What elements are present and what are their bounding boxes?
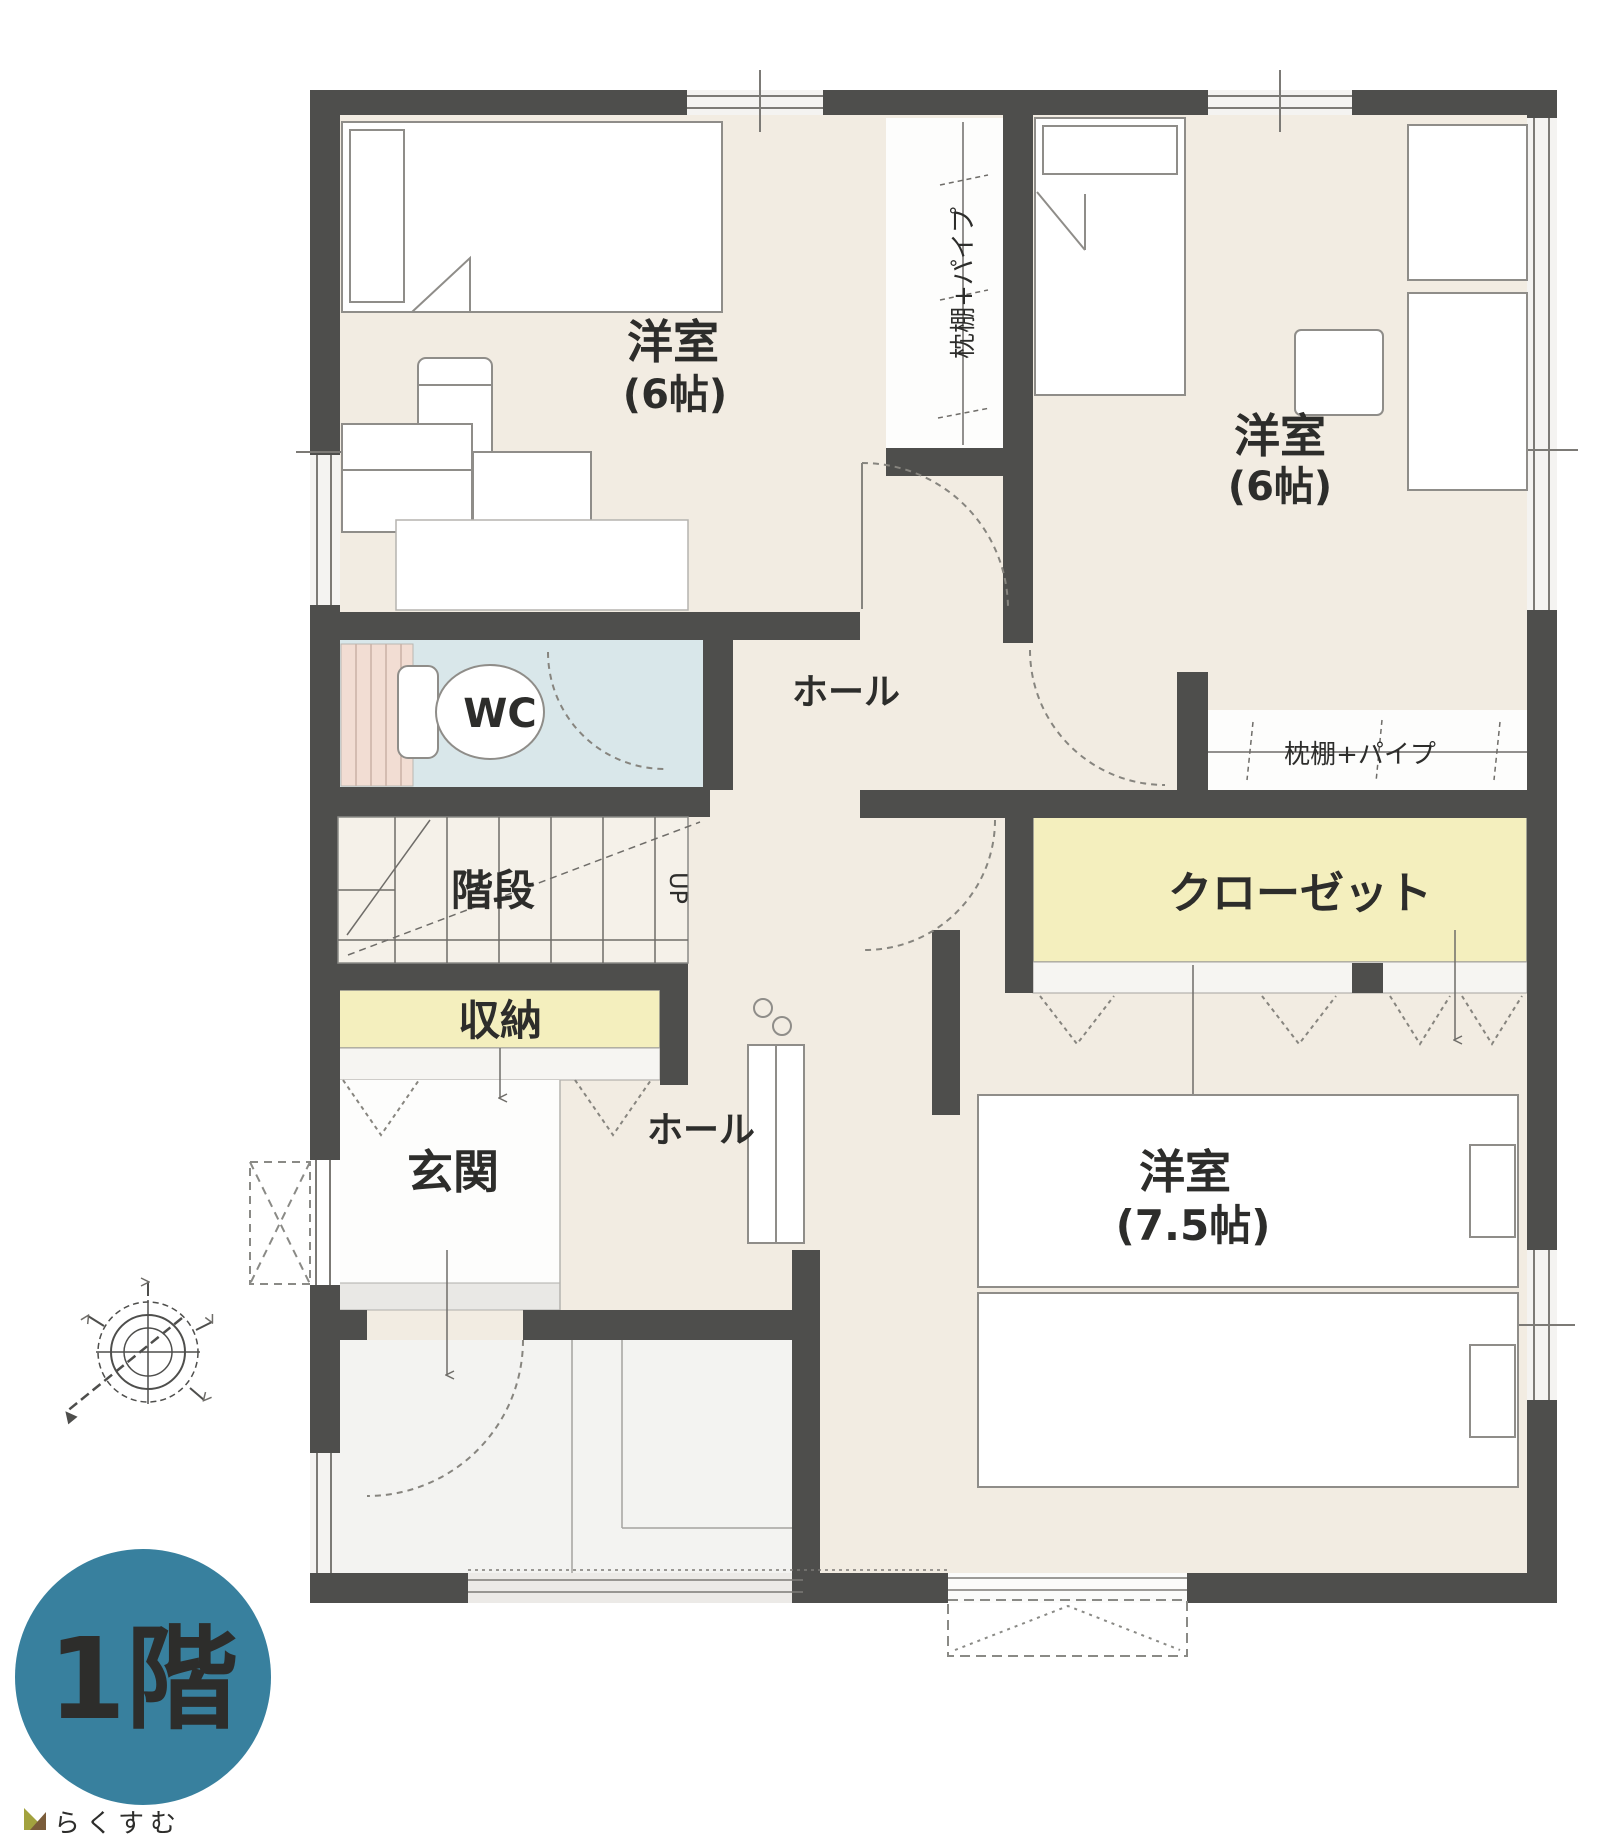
wall-top-2 — [823, 90, 1208, 115]
label-stairs: 階段 — [451, 866, 535, 915]
wall-storage-right — [660, 990, 688, 1085]
compass-icon — [66, 1282, 212, 1412]
wall-left-2 — [310, 605, 340, 1160]
floor-plan-canvas: 洋室 (6帖) 洋室 (6帖) 洋室 (7.5帖) WC 階段 UP 収納 玄関… — [0, 0, 1600, 1835]
wall-shelf-stub — [1177, 672, 1208, 790]
compass-north-arrow — [66, 1318, 182, 1412]
cabinet-nw-c — [396, 520, 688, 610]
label-bedroom-nw: 洋室 — [627, 315, 719, 369]
wall-right-2 — [1527, 1400, 1557, 1603]
floor-closet-strip-vertical — [886, 118, 1003, 448]
bed-s2 — [978, 1293, 1518, 1487]
label-bedroom-s-size: (7.5帖) — [1116, 1201, 1271, 1250]
label-hall-lower: ホール — [647, 1110, 755, 1151]
bed-s2-pillow — [1470, 1345, 1515, 1437]
wall-right-1 — [1527, 610, 1557, 1250]
wall-below-entrance-b — [523, 1310, 792, 1340]
label-closet: クローゼット — [1168, 868, 1432, 919]
wall-bottom-3 — [1187, 1573, 1557, 1603]
storage-door-strip — [338, 1048, 660, 1080]
wall-hall-right — [1005, 817, 1033, 993]
window-left-bottom — [310, 1453, 340, 1573]
wall-bottom-room-divider — [792, 1250, 820, 1603]
wall-wc-right — [703, 640, 733, 790]
sliding-door-strip — [468, 1573, 803, 1603]
wall-top-1 — [310, 90, 687, 115]
label-bedroom-nw-size: (6帖) — [623, 372, 727, 418]
wall-stairs-bottom — [338, 963, 688, 990]
entrance-door — [250, 1160, 340, 1285]
brand-watermark: らくすむ — [24, 1808, 182, 1835]
balcony — [948, 1600, 1187, 1656]
wall-closet-door-stub — [1352, 963, 1383, 993]
bed-ne-pillow — [1043, 126, 1177, 174]
wall-hall-room-stub — [932, 930, 960, 1115]
wall-below-nw-room — [338, 612, 860, 640]
floor-badge-text: 1階 — [48, 1615, 238, 1745]
wall-bottom-2 — [803, 1573, 948, 1603]
desk-ne — [1295, 330, 1383, 415]
floor-badge: 1階 — [15, 1549, 271, 1805]
label-shelf-horizontal: 枕棚+パイプ — [1284, 740, 1436, 770]
label-wc: WC — [463, 691, 536, 737]
wall-below-entrance-a — [310, 1310, 367, 1340]
balcony-hatch — [955, 1606, 1180, 1650]
label-storage: 収納 — [458, 996, 542, 1045]
wall-closet-strip-end — [886, 448, 1033, 476]
wall-room-divider — [1003, 115, 1033, 643]
label-hall-upper: ホール — [792, 672, 900, 713]
balcony-outline — [948, 1600, 1187, 1656]
label-bedroom-ne: 洋室 — [1234, 409, 1326, 463]
closet-door-strip — [1033, 962, 1527, 993]
brand-text: らくすむ — [54, 1809, 182, 1835]
label-shelf-vertical: 枕棚+パイプ — [949, 207, 979, 359]
floor-bottom-left-room — [338, 1340, 792, 1573]
wall-left-1 — [310, 90, 340, 455]
entrance-step — [338, 1283, 560, 1310]
label-bedroom-s: 洋室 — [1139, 1145, 1231, 1199]
bed-nw-pillow — [350, 130, 404, 302]
wall-bottom-1 — [310, 1573, 468, 1603]
label-entrance: 玄関 — [407, 1145, 499, 1199]
bed-s1-pillow — [1470, 1145, 1515, 1237]
cabinet-ne-b — [1408, 293, 1527, 490]
cabinet-ne-a — [1408, 125, 1527, 280]
wall-below-wc — [310, 787, 710, 817]
wall-right-corner — [1527, 90, 1557, 118]
label-stairs-up: UP — [664, 872, 692, 904]
wall-hall-closet — [860, 790, 1527, 818]
wall-top-3 — [1352, 90, 1557, 115]
dresser-nw — [342, 424, 472, 532]
label-bedroom-ne-size: (6帖) — [1228, 464, 1332, 510]
bed-s1 — [978, 1095, 1518, 1287]
